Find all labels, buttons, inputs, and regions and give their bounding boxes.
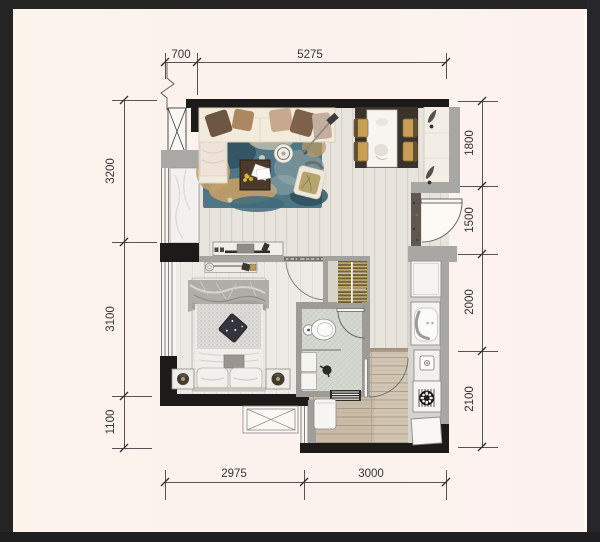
svg-text:1100: 1100 xyxy=(105,410,117,435)
svg-text:2975: 2975 xyxy=(221,468,247,480)
svg-text:3100: 3100 xyxy=(105,306,117,332)
svg-text:2100: 2100 xyxy=(464,386,476,412)
svg-text:1800: 1800 xyxy=(464,130,476,156)
svg-text:2000: 2000 xyxy=(464,289,476,315)
svg-text:3000: 3000 xyxy=(358,468,384,480)
svg-text:700: 700 xyxy=(171,49,190,61)
svg-text:1500: 1500 xyxy=(464,207,476,233)
svg-text:5275: 5275 xyxy=(297,49,323,61)
svg-text:3200: 3200 xyxy=(105,158,117,184)
